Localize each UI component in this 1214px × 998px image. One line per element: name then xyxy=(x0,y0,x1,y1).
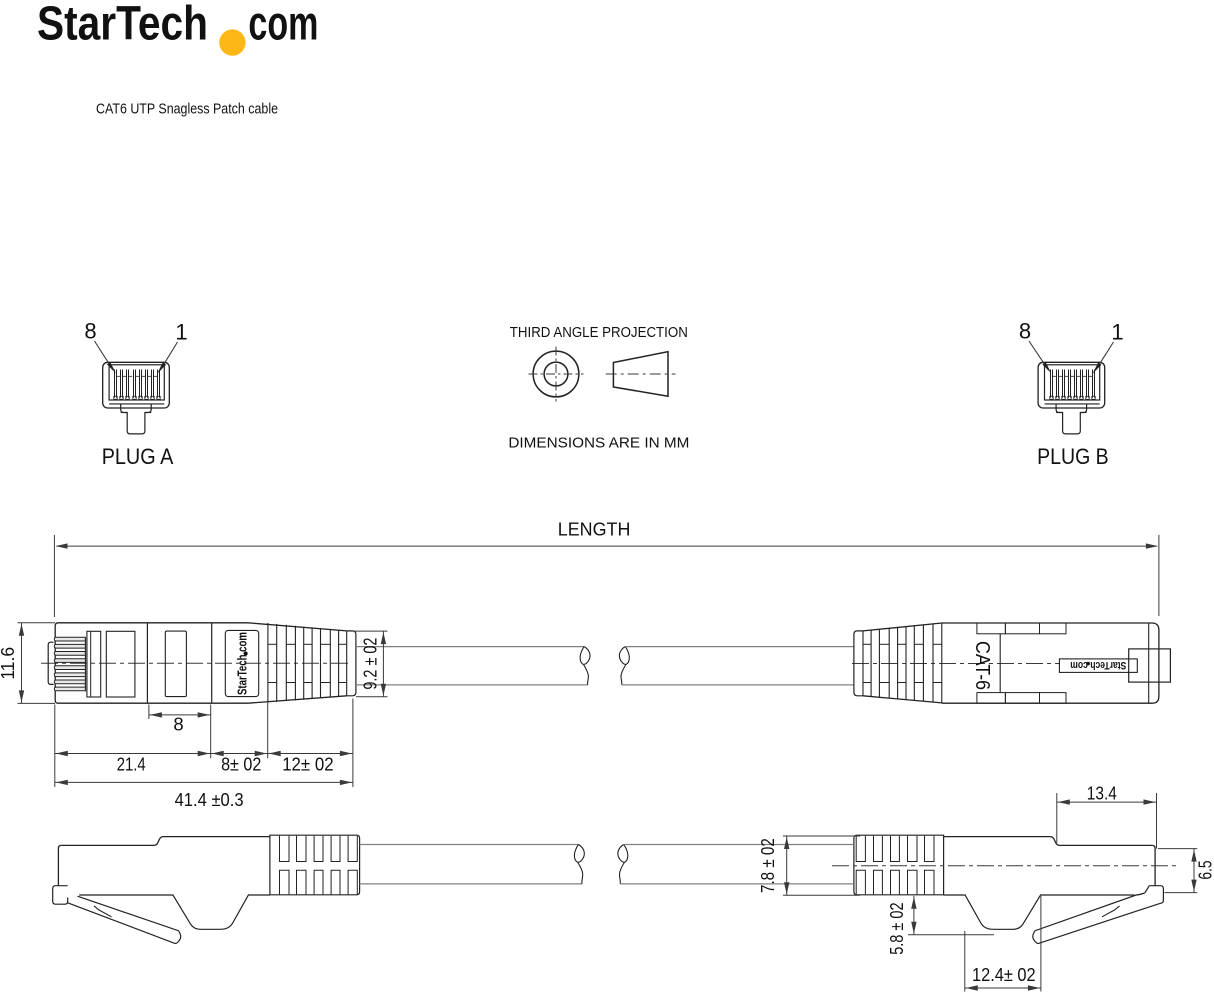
svg-text:41.4 ±0.3: 41.4 ±0.3 xyxy=(175,789,244,810)
svg-text:7.8 ± 02: 7.8 ± 02 xyxy=(757,838,778,893)
svg-text:THIRD ANGLE PROJECTION: THIRD ANGLE PROJECTION xyxy=(510,324,688,341)
svg-text:12± 02: 12± 02 xyxy=(282,754,333,775)
svg-text:5.8 ± 02: 5.8 ± 02 xyxy=(886,902,907,954)
svg-text:21.4: 21.4 xyxy=(117,754,146,775)
svg-text:9.2 ± 02: 9.2 ± 02 xyxy=(360,638,381,690)
svg-text:CAT6 UTP Snagless Patch cable: CAT6 UTP Snagless Patch cable xyxy=(96,101,278,118)
svg-text:13.4: 13.4 xyxy=(1087,782,1117,803)
svg-text:6.5: 6.5 xyxy=(1195,860,1214,879)
svg-text:PLUG B: PLUG B xyxy=(1037,444,1109,469)
svg-text:8: 8 xyxy=(173,713,183,734)
svg-text:8: 8 xyxy=(84,319,96,344)
svg-text:12.4± 02: 12.4± 02 xyxy=(972,964,1036,985)
svg-text:1: 1 xyxy=(1111,320,1123,345)
svg-text:LENGTH: LENGTH xyxy=(558,518,631,539)
svg-text:8: 8 xyxy=(1019,319,1031,344)
svg-text:StarTech com: StarTech com xyxy=(1070,659,1126,671)
svg-text:11.6: 11.6 xyxy=(0,647,18,680)
svg-text:com: com xyxy=(248,0,318,51)
svg-text:1: 1 xyxy=(175,320,187,345)
svg-text:CAT-6: CAT-6 xyxy=(971,641,993,690)
svg-text:PLUG A: PLUG A xyxy=(102,444,174,469)
svg-text:8± 02: 8± 02 xyxy=(221,754,261,775)
svg-text:DIMENSIONS ARE IN MM: DIMENSIONS ARE IN MM xyxy=(508,435,689,452)
svg-text:StarTech: StarTech xyxy=(37,0,208,51)
svg-text:StarTech com: StarTech com xyxy=(235,632,249,695)
